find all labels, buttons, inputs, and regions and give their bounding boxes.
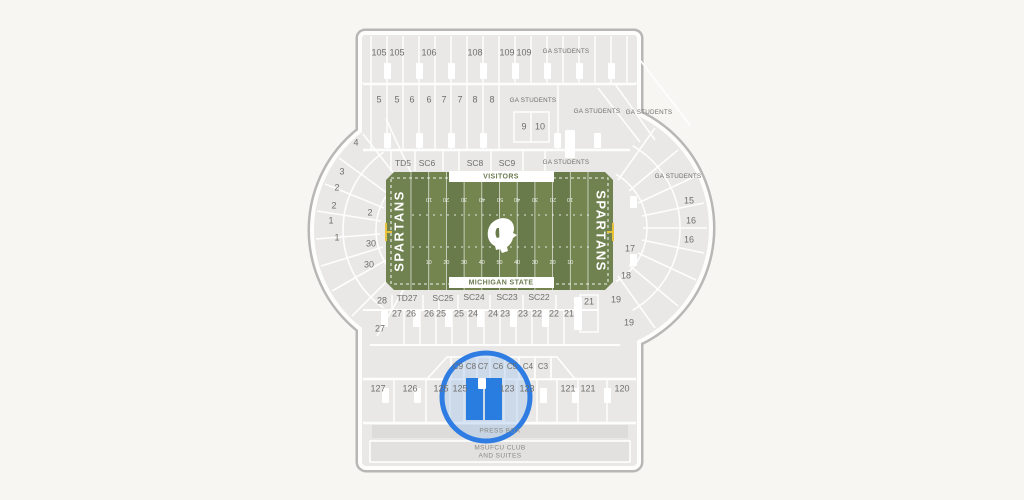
- section-label[interactable]: 106: [421, 49, 436, 58]
- section-label[interactable]: SC25: [432, 294, 453, 303]
- section-label[interactable]: 16: [686, 217, 696, 226]
- section-label[interactable]: SC24: [463, 293, 484, 302]
- section-label[interactable]: 25: [436, 310, 446, 319]
- section-label[interactable]: 7: [457, 96, 462, 105]
- section-label[interactable]: 6: [409, 96, 414, 105]
- section-label[interactable]: 27: [375, 325, 385, 334]
- section-label[interactable]: 125: [433, 385, 448, 394]
- section-label[interactable]: C6: [493, 363, 503, 371]
- section-label[interactable]: C7: [478, 363, 488, 371]
- section-label[interactable]: SC8: [467, 159, 484, 168]
- section-label[interactable]: 22: [549, 310, 559, 319]
- section-label[interactable]: 28: [377, 297, 387, 306]
- section-label[interactable]: 105: [371, 49, 386, 58]
- section-label[interactable]: 2: [367, 209, 372, 218]
- section-label[interactable]: SC22: [528, 293, 549, 302]
- section-label[interactable]: C9: [453, 363, 463, 371]
- section-label[interactable]: 123: [519, 385, 534, 394]
- section-label[interactable]: 24: [488, 310, 498, 319]
- section-label[interactable]: 15: [684, 197, 694, 206]
- section-label[interactable]: 26: [424, 310, 434, 319]
- football-field[interactable]: [386, 171, 613, 290]
- section-label[interactable]: 109: [516, 49, 531, 58]
- section-label[interactable]: 26: [406, 310, 416, 319]
- section-label[interactable]: C5: [507, 363, 517, 371]
- section-label[interactable]: 3: [339, 168, 344, 177]
- section-label[interactable]: 17: [625, 245, 635, 254]
- section-label[interactable]: 30: [366, 240, 376, 249]
- section-label[interactable]: GA STUDENTS: [574, 109, 621, 115]
- section-label[interactable]: 108: [467, 49, 482, 58]
- section-label[interactable]: 30: [364, 261, 374, 270]
- section-label[interactable]: SC23: [496, 293, 517, 302]
- section-label[interactable]: SC9: [499, 159, 516, 168]
- section-label[interactable]: 105: [389, 49, 404, 58]
- section-label[interactable]: 126: [402, 385, 417, 394]
- section-label[interactable]: 10: [535, 123, 545, 132]
- section-label[interactable]: 19: [611, 296, 621, 305]
- section-label[interactable]: 120: [614, 385, 629, 394]
- section-label[interactable]: GA STUDENTS: [543, 160, 590, 166]
- suites-bar: [370, 441, 630, 462]
- section-label[interactable]: TD5: [395, 159, 411, 168]
- section-label[interactable]: 109: [499, 49, 514, 58]
- section-label[interactable]: C4: [523, 363, 533, 371]
- section-label[interactable]: 123: [499, 385, 514, 394]
- section-label[interactable]: 24: [468, 310, 478, 319]
- section-label[interactable]: 6: [426, 96, 431, 105]
- section-label[interactable]: 1: [328, 217, 333, 226]
- section-label[interactable]: 22: [532, 310, 542, 319]
- section-label[interactable]: 121: [580, 385, 595, 394]
- section-label[interactable]: 1: [334, 234, 339, 243]
- section-label[interactable]: 7: [441, 96, 446, 105]
- section-label[interactable]: GA STUDENTS: [510, 98, 557, 104]
- section-label[interactable]: GA STUDENTS: [626, 110, 673, 116]
- section-label[interactable]: 27: [392, 310, 402, 319]
- section-label[interactable]: 21: [564, 310, 574, 319]
- section-label[interactable]: GA STUDENTS: [655, 174, 702, 180]
- section-label[interactable]: 8: [489, 96, 494, 105]
- section-label[interactable]: 2: [331, 202, 336, 211]
- section-label[interactable]: C8: [466, 363, 476, 371]
- section-label[interactable]: 8: [472, 96, 477, 105]
- section-label[interactable]: TD27: [397, 294, 418, 303]
- section-label[interactable]: 2: [334, 184, 339, 193]
- section-label[interactable]: 9: [521, 123, 526, 132]
- section-label[interactable]: 21: [584, 298, 594, 307]
- section-label[interactable]: 4: [353, 139, 358, 148]
- home-bar: [449, 277, 554, 288]
- section-label[interactable]: 23: [500, 310, 510, 319]
- section-label[interactable]: 18: [621, 272, 631, 281]
- section-label[interactable]: 121: [560, 385, 575, 394]
- selected-aisle-notch: [478, 378, 486, 389]
- section-label[interactable]: 19: [624, 319, 634, 328]
- visitors-bar: [449, 171, 554, 182]
- section-label[interactable]: 5: [376, 96, 381, 105]
- stadium-map-svg: [0, 0, 1024, 500]
- section-label[interactable]: 16: [684, 236, 694, 245]
- seating-map: VISITORS MICHIGAN STATE SPARTANS SPARTAN…: [0, 0, 1024, 500]
- section-label[interactable]: 125: [452, 385, 467, 394]
- section-label[interactable]: C3: [538, 363, 548, 371]
- section-label[interactable]: GA STUDENTS: [543, 49, 590, 55]
- section-label[interactable]: 127: [370, 385, 385, 394]
- section-label[interactable]: 25: [454, 310, 464, 319]
- section-label[interactable]: 23: [518, 310, 528, 319]
- section-label[interactable]: 5: [394, 96, 399, 105]
- section-label[interactable]: SC6: [419, 159, 436, 168]
